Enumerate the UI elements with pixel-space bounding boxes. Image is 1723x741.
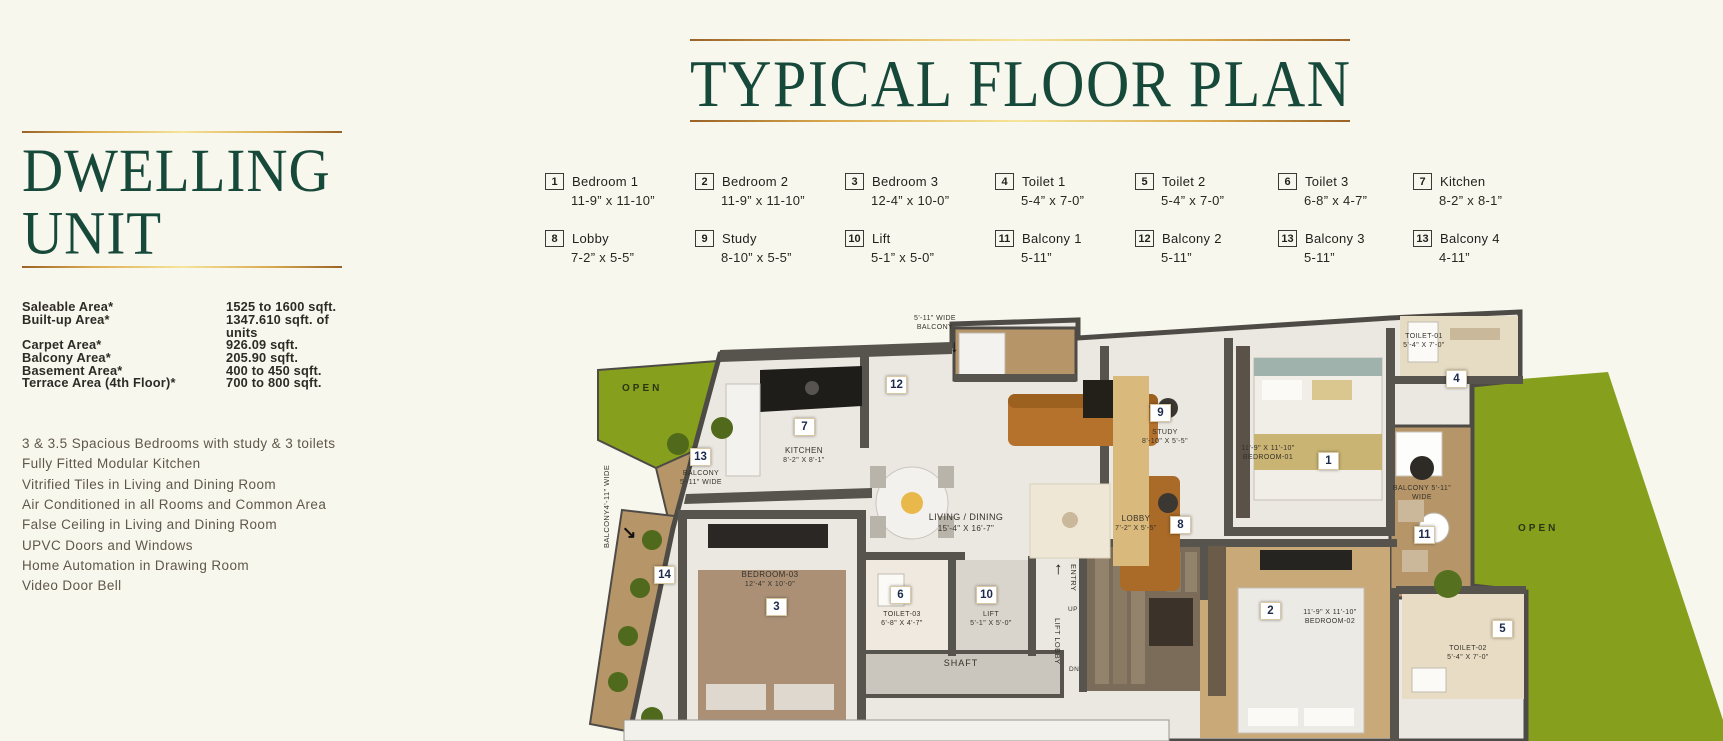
legend-number: 4 bbox=[995, 173, 1014, 190]
feature-item: Video Door Bell bbox=[22, 576, 342, 596]
badge-kitchen: 7 bbox=[794, 418, 815, 436]
feature-item: Fully Fitted Modular Kitchen bbox=[22, 454, 342, 474]
legend-item: 13Balcony 35-11” bbox=[1278, 230, 1413, 265]
bedroom-1-name: BEDROOM-01 bbox=[1216, 453, 1320, 462]
gold-divider bbox=[690, 39, 1350, 41]
legend-label: Bedroom 1 bbox=[572, 174, 638, 189]
badge-bedroom-2: 2 bbox=[1260, 602, 1281, 620]
lift-lobby-label: LIFT LOBBY bbox=[1052, 618, 1062, 664]
up-arrow-icon: ↑ bbox=[1054, 560, 1063, 577]
legend-number: 11 bbox=[995, 230, 1014, 247]
top-balcony-annotation: 5'-11" WIDE BALCONY bbox=[890, 314, 980, 332]
legend-item: 2Bedroom 211-9” x 11-10” bbox=[695, 173, 845, 208]
legend-item: 6Toilet 36-8” x 4-7” bbox=[1278, 173, 1413, 208]
feature-item: False Ceiling in Living and Dining Room bbox=[22, 515, 342, 535]
legend-number: 6 bbox=[1278, 173, 1297, 190]
toilet-1-name: TOILET-01 bbox=[1382, 332, 1466, 341]
spec-label: Terrace Area (4th Floor)* bbox=[22, 377, 226, 390]
toilet-2-dims: 5'-4" X 7'-0" bbox=[1426, 653, 1510, 662]
panel-title-line2: UNIT bbox=[22, 203, 342, 266]
kitchen-label: KITCHEN 8'-2" X 8'-1" bbox=[756, 446, 852, 465]
gold-divider bbox=[22, 131, 342, 133]
toilet-2-name: TOILET-02 bbox=[1426, 644, 1510, 653]
legend-item: 4Toilet 15-4” x 7-0” bbox=[995, 173, 1135, 208]
balcony-1-label: BALCONY 5'-11" WIDE bbox=[1384, 484, 1460, 502]
floor-plan-render: 5'-11" WIDE BALCONY ↓ 12 OPEN 13 BALCONY… bbox=[560, 288, 1723, 741]
up-label: UP bbox=[1068, 606, 1078, 614]
legend-item: 11Balcony 15-11” bbox=[995, 230, 1135, 265]
legend-dims: 8-2” x 8-1” bbox=[1439, 193, 1573, 208]
balcony-3-name: BALCONY bbox=[664, 469, 738, 478]
spec-label: Built-up Area* bbox=[22, 314, 226, 339]
bedroom-3-label: BEDROOM-03 12'-4" X 10'-0" bbox=[720, 570, 820, 589]
bedroom-1-dims: 11'-9" X 11'-10" bbox=[1216, 444, 1320, 453]
feature-item: Air Conditioned in all Rooms and Common … bbox=[22, 495, 342, 515]
legend-dims: 11-9” x 11-10” bbox=[721, 193, 845, 208]
study-label: STUDY 8'-10" X 5'-5" bbox=[1122, 428, 1208, 446]
kitchen-name: KITCHEN bbox=[756, 446, 852, 456]
legend-label: Toilet 3 bbox=[1305, 174, 1349, 189]
study-dims: 8'-10" X 5'-5" bbox=[1122, 437, 1208, 446]
legend-item: 12Balcony 25-11” bbox=[1135, 230, 1278, 265]
panel-title: DWELLING UNIT bbox=[22, 140, 342, 266]
legend-dims: 8-10” x 5-5” bbox=[721, 250, 845, 265]
feature-item: Vitrified Tiles in Living and Dining Roo… bbox=[22, 475, 342, 495]
bedroom-3-name: BEDROOM-03 bbox=[720, 570, 820, 580]
legend-label: Bedroom 2 bbox=[722, 174, 788, 189]
badge-lobby: 8 bbox=[1170, 516, 1191, 534]
bedroom-2-name: BEDROOM-02 bbox=[1278, 617, 1382, 626]
badge-toilet-1: 4 bbox=[1446, 370, 1467, 388]
legend-number: 5 bbox=[1135, 173, 1154, 190]
open-area-label-right: OPEN bbox=[1518, 522, 1558, 535]
bedroom-1-label: 11'-9" X 11'-10" BEDROOM-01 bbox=[1216, 444, 1320, 462]
legend-number: 10 bbox=[845, 230, 864, 247]
open-area-label-left: OPEN bbox=[622, 382, 662, 395]
living-dining-dims: 15'-4" X 16'-7" bbox=[906, 524, 1026, 534]
legend-number: 7 bbox=[1413, 173, 1432, 190]
badge-lift: 10 bbox=[976, 586, 997, 604]
balcony-3-dims: 5'-11" WIDE bbox=[664, 478, 738, 487]
legend-item: 8Lobby7-2” x 5-5” bbox=[545, 230, 695, 265]
badge-bedroom-1: 1 bbox=[1318, 452, 1339, 470]
page-title: TYPICAL FLOOR PLAN bbox=[690, 50, 1350, 117]
badge-balcony-3: 13 bbox=[690, 448, 711, 466]
spec-value: 700 to 800 sqft. bbox=[226, 377, 322, 390]
legend-number: 8 bbox=[545, 230, 564, 247]
entry-label: ENTRY bbox=[1068, 564, 1078, 591]
room-legend: 1Bedroom 111-9” x 11-10” 2Bedroom 211-9”… bbox=[545, 173, 1573, 265]
legend-number: 3 bbox=[845, 173, 864, 190]
bedroom-2-label: 11'-9" X 11'-10" BEDROOM-02 bbox=[1278, 608, 1382, 626]
toilet-3-name: TOILET-03 bbox=[866, 610, 938, 619]
feature-item: 3 & 3.5 Spacious Bedrooms with study & 3… bbox=[22, 434, 342, 454]
legend-dims: 5-11” bbox=[1161, 250, 1278, 265]
legend-dims: 5-4” x 7-0” bbox=[1021, 193, 1135, 208]
balcony-4-label: BALCONY4'-11" WIDE bbox=[602, 456, 612, 556]
toilet-2-label: TOILET-02 5'-4" X 7'-0" bbox=[1426, 644, 1510, 662]
living-dining-name: LIVING / DINING bbox=[906, 512, 1026, 524]
legend-dims: 6-8” x 4-7” bbox=[1304, 193, 1413, 208]
bedroom-2-dims: 11'-9" X 11'-10" bbox=[1278, 608, 1382, 617]
legend-item: 5Toilet 25-4” x 7-0” bbox=[1135, 173, 1278, 208]
badge-toilet-3: 6 bbox=[890, 586, 911, 604]
legend-item: 1Bedroom 111-9” x 11-10” bbox=[545, 173, 695, 208]
down-arrow-icon: ↓ bbox=[950, 338, 959, 355]
top-balcony-dims: 5'-11" WIDE bbox=[890, 314, 980, 323]
badge-bedroom-3: 3 bbox=[766, 598, 787, 616]
floor-plan-page: { "left_panel": { "title_line1": "DWELLI… bbox=[0, 0, 1723, 741]
panel-title-line1: DWELLING bbox=[22, 140, 342, 203]
feature-item: UPVC Doors and Windows bbox=[22, 536, 342, 556]
legend-number: 1 bbox=[545, 173, 564, 190]
top-balcony-label: BALCONY bbox=[890, 323, 980, 332]
toilet-1-dims: 5'-4" X 7'-0" bbox=[1382, 341, 1466, 350]
legend-number: 12 bbox=[1135, 230, 1154, 247]
legend-number: 13 bbox=[1278, 230, 1297, 247]
legend-number: 2 bbox=[695, 173, 714, 190]
legend-number: 9 bbox=[695, 230, 714, 247]
lift-dims: 5'-1" X 5'-0" bbox=[960, 619, 1022, 628]
toilet-1-label: TOILET-01 5'-4" X 7'-0" bbox=[1382, 332, 1466, 350]
legend-item: 9Study8-10” x 5-5” bbox=[695, 230, 845, 265]
balcony-1-dims: WIDE bbox=[1384, 493, 1460, 502]
balcony-1-name: BALCONY 5'-11" bbox=[1384, 484, 1460, 493]
badge-balcony-1: 11 bbox=[1414, 526, 1435, 544]
shaft-label: SHAFT bbox=[918, 658, 1004, 670]
legend-number: 13 bbox=[1413, 230, 1432, 247]
toilet-3-label: TOILET-03 6'-8" X 4'-7" bbox=[866, 610, 938, 628]
legend-item: 3Bedroom 312-4” x 10-0” bbox=[845, 173, 995, 208]
legend-label: Toilet 1 bbox=[1022, 174, 1066, 189]
feature-item: Home Automation in Drawing Room bbox=[22, 556, 342, 576]
badge-toilet-2: 5 bbox=[1492, 620, 1513, 638]
legend-label: Toilet 2 bbox=[1162, 174, 1206, 189]
dn-label: DN bbox=[1069, 666, 1079, 674]
legend-dims: 5-11” bbox=[1304, 250, 1413, 265]
study-name: STUDY bbox=[1122, 428, 1208, 437]
area-specs: Saleable Area*1525 to 1600 sqft. Built-u… bbox=[22, 301, 342, 390]
legend-label: Balcony 3 bbox=[1305, 231, 1365, 246]
bedroom-3-dims: 12'-4" X 10'-0" bbox=[720, 580, 820, 589]
page-header: TYPICAL FLOOR PLAN bbox=[690, 39, 1350, 122]
legend-item: 13Balcony 44-11” bbox=[1413, 230, 1573, 265]
badge-study: 9 bbox=[1150, 404, 1171, 422]
legend-label: Balcony 1 bbox=[1022, 231, 1082, 246]
legend-label: Balcony 2 bbox=[1162, 231, 1222, 246]
features-list: 3 & 3.5 Spacious Bedrooms with study & 3… bbox=[22, 434, 342, 596]
legend-dims: 7-2” x 5-5” bbox=[571, 250, 695, 265]
badge-balcony-4: 14 bbox=[654, 566, 675, 584]
toilet-3-dims: 6'-8" X 4'-7" bbox=[866, 619, 938, 628]
lift-label: LIFT 5'-1" X 5'-0" bbox=[960, 610, 1022, 628]
lift-name: LIFT bbox=[960, 610, 1022, 619]
legend-dims: 11-9” x 11-10” bbox=[571, 193, 695, 208]
legend-dims: 5-1” x 5-0” bbox=[871, 250, 995, 265]
legend-label: Lift bbox=[872, 231, 891, 246]
legend-dims: 4-11” bbox=[1439, 250, 1573, 265]
balcony-3-label: BALCONY 5'-11" WIDE bbox=[664, 469, 738, 487]
legend-label: Bedroom 3 bbox=[872, 174, 938, 189]
legend-dims: 5-4” x 7-0” bbox=[1161, 193, 1278, 208]
legend-dims: 12-4” x 10-0” bbox=[871, 193, 995, 208]
legend-item: 10Lift5-1” x 5-0” bbox=[845, 230, 995, 265]
legend-label: Study bbox=[722, 231, 757, 246]
spec-value: 1347.610 sqft. of units bbox=[226, 314, 342, 339]
legend-label: Kitchen bbox=[1440, 174, 1485, 189]
down-right-arrow-icon: ↘ bbox=[622, 524, 636, 541]
legend-dims: 5-11” bbox=[1021, 250, 1135, 265]
dwelling-unit-panel: DWELLING UNIT Saleable Area*1525 to 1600… bbox=[22, 131, 342, 597]
spec-row: Terrace Area (4th Floor)*700 to 800 sqft… bbox=[22, 377, 342, 390]
badge-balcony-2: 12 bbox=[886, 376, 907, 394]
legend-item: 7Kitchen8-2” x 8-1” bbox=[1413, 173, 1573, 208]
legend-label: Lobby bbox=[572, 231, 609, 246]
spec-row: Built-up Area*1347.610 sqft. of units bbox=[22, 314, 342, 339]
living-dining-label: LIVING / DINING 15'-4" X 16'-7" bbox=[906, 512, 1026, 534]
legend-label: Balcony 4 bbox=[1440, 231, 1500, 246]
kitchen-dims: 8'-2" X 8'-1" bbox=[756, 456, 852, 465]
